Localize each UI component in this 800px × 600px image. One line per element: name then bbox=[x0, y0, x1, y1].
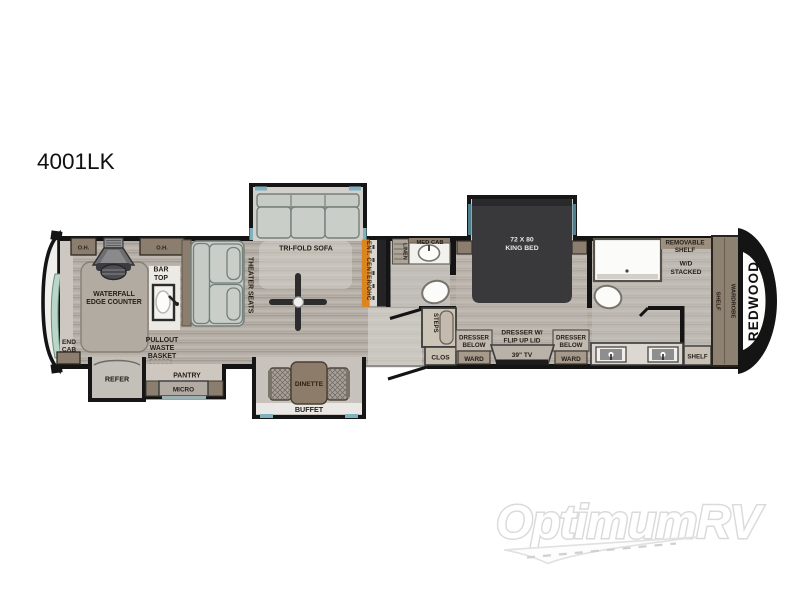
svg-text:MED CAB: MED CAB bbox=[416, 240, 443, 246]
svg-text:4001LK: 4001LK bbox=[37, 149, 115, 174]
svg-text:DRESSER: DRESSER bbox=[556, 335, 586, 342]
svg-text:BAR: BAR bbox=[154, 267, 169, 274]
svg-text:OptimumRV: OptimumRV bbox=[496, 495, 765, 548]
svg-text:WATERFALL: WATERFALL bbox=[93, 291, 135, 298]
svg-text:BASKET: BASKET bbox=[148, 353, 177, 360]
svg-text:KING BED: KING BED bbox=[505, 245, 538, 252]
svg-text:TRI-FOLD SOFA: TRI-FOLD SOFA bbox=[279, 246, 333, 253]
svg-text:EDGE COUNTER: EDGE COUNTER bbox=[86, 299, 142, 306]
svg-text:ENT. CENTER/OHC: ENT. CENTER/OHC bbox=[365, 241, 371, 301]
svg-text:DRESSER W/: DRESSER W/ bbox=[501, 330, 542, 337]
svg-text:O.H.: O.H. bbox=[156, 246, 168, 252]
svg-text:DINETTE: DINETTE bbox=[295, 381, 324, 388]
svg-text:72 X 80: 72 X 80 bbox=[510, 237, 534, 244]
svg-text:TOP: TOP bbox=[154, 275, 168, 282]
svg-text:PULLOUT: PULLOUT bbox=[146, 337, 179, 344]
svg-text:39" TV: 39" TV bbox=[512, 352, 533, 359]
svg-text:FLIP UP LID: FLIP UP LID bbox=[504, 338, 541, 345]
svg-text:STACKED: STACKED bbox=[671, 269, 702, 276]
svg-text:SHELF: SHELF bbox=[687, 354, 708, 361]
svg-text:SHELF: SHELF bbox=[715, 291, 721, 310]
svg-text:WASTE: WASTE bbox=[150, 345, 175, 352]
svg-text:REDWOOD: REDWOOD bbox=[746, 261, 761, 341]
svg-text:END: END bbox=[62, 339, 76, 346]
svg-text:THEATER SEATS: THEATER SEATS bbox=[247, 257, 254, 314]
svg-text:STEPS: STEPS bbox=[432, 313, 438, 333]
svg-text:PANTRY: PANTRY bbox=[173, 373, 201, 380]
svg-text:BELOW: BELOW bbox=[462, 342, 485, 349]
svg-text:REMOVABLE: REMOVABLE bbox=[665, 240, 704, 247]
svg-text:DRESSER: DRESSER bbox=[459, 335, 489, 342]
svg-text:O.H.: O.H. bbox=[78, 246, 90, 252]
svg-text:W/D: W/D bbox=[680, 261, 693, 268]
svg-text:REFER: REFER bbox=[105, 375, 130, 384]
svg-text:MICRO: MICRO bbox=[173, 387, 194, 394]
svg-text:WARD: WARD bbox=[561, 356, 581, 363]
svg-text:BELOW: BELOW bbox=[559, 342, 582, 349]
svg-text:LINEN: LINEN bbox=[402, 243, 408, 260]
svg-text:BUFFET: BUFFET bbox=[295, 405, 324, 414]
svg-text:CLOS: CLOS bbox=[431, 355, 450, 362]
svg-text:SHELF: SHELF bbox=[675, 247, 696, 254]
svg-text:WARDROBE: WARDROBE bbox=[730, 284, 736, 319]
svg-text:WARD: WARD bbox=[464, 356, 484, 363]
